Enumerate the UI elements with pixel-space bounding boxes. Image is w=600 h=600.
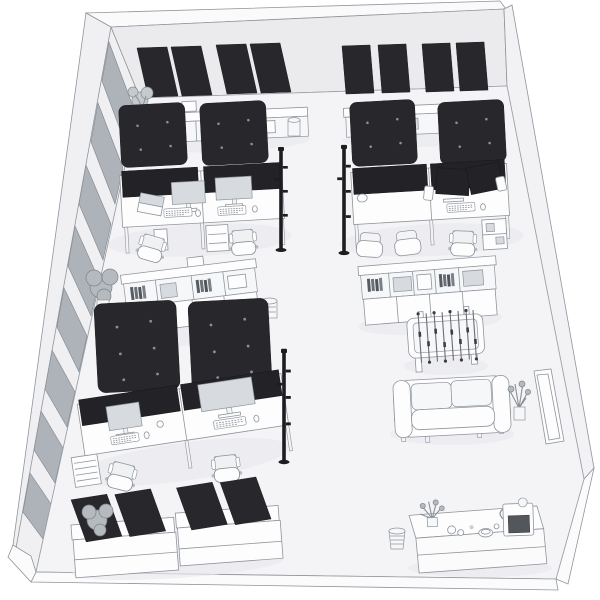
waste-bin-kitchenette — [389, 528, 405, 549]
mouse — [195, 210, 200, 217]
office-chair — [448, 230, 478, 257]
cup — [447, 526, 455, 534]
acoustic-wall-panel — [456, 42, 488, 91]
mouse — [144, 431, 150, 438]
monitor — [436, 168, 471, 196]
acoustic-wall-panel — [378, 44, 410, 93]
acoustic-wall-panel — [422, 43, 454, 92]
desk-item — [357, 194, 367, 203]
office-render — [0, 0, 600, 600]
small-item — [494, 524, 499, 529]
keyboard — [164, 207, 192, 217]
office-chair — [356, 232, 384, 258]
laptop — [137, 193, 164, 216]
acoustic-wall-panel — [342, 45, 374, 94]
mouse — [252, 206, 257, 213]
cup — [458, 529, 464, 535]
pedestal-drawers — [206, 225, 229, 252]
office-render-svg — [0, 0, 600, 600]
privacy-screen — [352, 164, 427, 194]
mouse — [253, 415, 259, 422]
bowl — [479, 528, 493, 537]
speaker — [423, 186, 433, 201]
trash-bin-back — [288, 118, 300, 136]
under-desk-shelf — [482, 219, 508, 250]
mouse — [480, 204, 485, 211]
pedestal-drawers — [71, 454, 101, 488]
keyboard — [218, 205, 246, 215]
keyboard — [447, 202, 475, 212]
